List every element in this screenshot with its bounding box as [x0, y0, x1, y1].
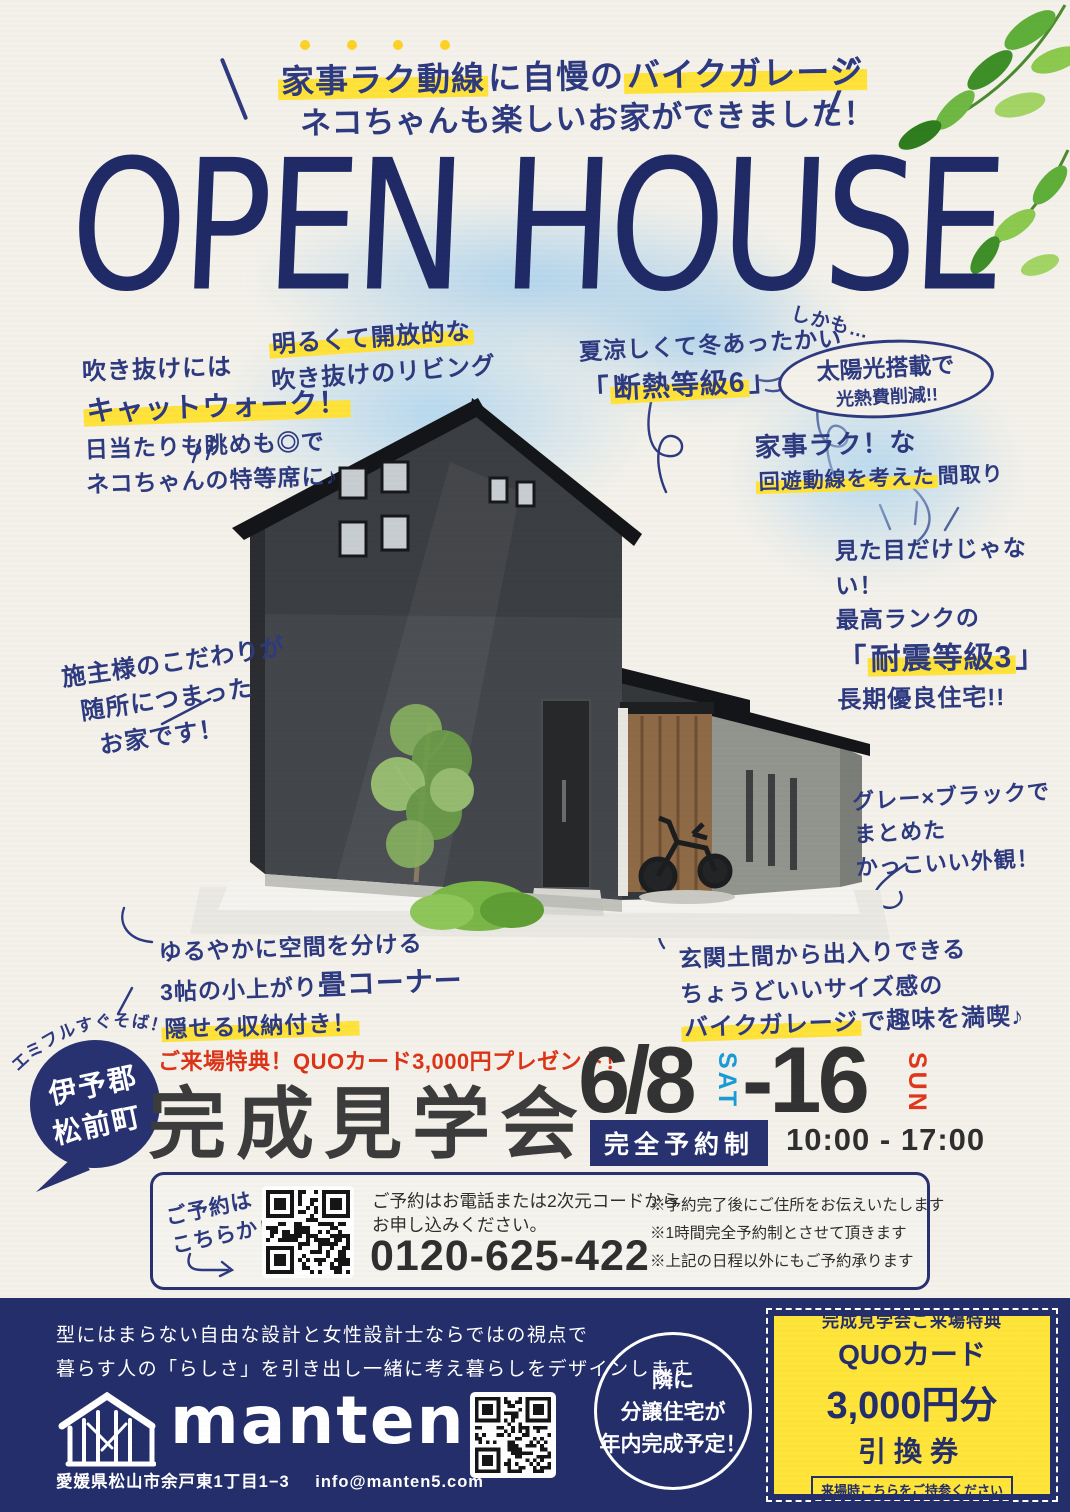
- bubble-line: 光熱費削減!!: [835, 380, 938, 411]
- note-line: ※1時間完全予約制とさせて頂きます: [650, 1220, 944, 1248]
- coupon-line: 3,000円分: [826, 1374, 997, 1429]
- email-text: info@manten5.com: [315, 1473, 484, 1491]
- event-day-end: SUN: [902, 1052, 931, 1114]
- note-line: 「耐震等級3」: [836, 633, 1070, 682]
- note-line: ※予約完了後にご住所をお伝えいたします: [650, 1192, 944, 1220]
- note-taishin: 見た目だけじゃない！ 最高ランクの 「耐震等級3」 長期優良住宅!!: [834, 530, 1070, 719]
- reservation-notes: ※予約完了後にご住所をお伝えいたします ※1時間完全予約制とさせて頂きます ※上…: [650, 1192, 944, 1276]
- footer-tagline1: 型にはまらない自由な設計と女性設計士ならではの視点で: [56, 1320, 588, 1347]
- brand-name: manten: [170, 1382, 466, 1459]
- reservation-qr-code-icon: [262, 1186, 354, 1278]
- note-line: 最高ランクの: [836, 599, 1070, 638]
- note-kaji: 家事ラク！な 回遊動線を考えた間取り: [754, 420, 1004, 499]
- flyer-page: 家事ラク動線に自慢のバイクガレージ ネコちゃんも楽しいお家ができました！ OPE…: [0, 0, 1070, 1512]
- coupon-line: QUOカード: [838, 1333, 986, 1373]
- coupon-note: 来場時こちらをご持参ください: [811, 1476, 1013, 1503]
- next-lot-circle: 隣に 分譲住宅が 年内完成予定！: [594, 1332, 752, 1490]
- circle-line: 隣に: [652, 1364, 694, 1394]
- page-title: OPEN HOUSE: [42, 136, 1030, 317]
- event-date-start: 6/8: [578, 1026, 691, 1134]
- event-hours: 10:00 - 17:00: [786, 1122, 985, 1158]
- reservation-line1: ご予約はお電話または2次元コードから: [372, 1190, 679, 1214]
- header-dots: [300, 40, 450, 50]
- coupon-title: 完成見学会ご来場特典: [822, 1307, 1002, 1332]
- event-title: 完成見学会: [148, 1062, 588, 1174]
- note-line: 見た目だけじゃない！: [834, 530, 1069, 603]
- footer-tagline2: 暮らす人の「らしさ」を引き出し一緒に考え暮らしをデザインします: [56, 1354, 691, 1381]
- footer-address: 愛媛県松山市余戸東1丁目1−3 info@manten5.com: [56, 1468, 484, 1492]
- coupon-line: 引換券: [858, 1430, 966, 1470]
- footer-band: 型にはまらない自由な設計と女性設計士ならではの視点で 暮らす人の「らしさ」を引き…: [0, 1298, 1070, 1512]
- address-text: 愛媛県松山市余戸東1丁目1−3: [56, 1473, 290, 1491]
- coupon: 完成見学会ご来場特典 QUOカード 3,000円分 引換券 来場時こちらをご持参…: [774, 1316, 1050, 1494]
- note-line: ※上記の日程以外にもご予約承ります: [650, 1248, 944, 1276]
- reservation-text: ご予約はお電話または2次元コードから お申し込みください。: [372, 1190, 679, 1237]
- footer-qr-code-icon: [470, 1392, 556, 1478]
- reserve-only-badge: 完全予約制: [590, 1120, 768, 1166]
- manten-house-logo-icon: [58, 1390, 156, 1470]
- header-line1-seg3: バイクガレージ: [624, 53, 867, 94]
- circle-line: 年内完成予定！: [600, 1428, 747, 1458]
- header-line1-seg2: に自慢の: [488, 57, 625, 96]
- note-line: 長期優良住宅!!: [837, 678, 1070, 718]
- event-day-start: SAT: [712, 1052, 741, 1109]
- header-line1-seg1: 家事ラク動線: [278, 59, 489, 100]
- event-date-end: -16: [742, 1026, 866, 1134]
- note-exterior: グレー×ブラックで まとめた かっこいい外観！: [852, 775, 1055, 884]
- phone-number: 0120-625-422: [370, 1232, 650, 1281]
- circle-line: 分譲住宅が: [621, 1396, 726, 1426]
- reservation-arrow-icon: [184, 1252, 240, 1280]
